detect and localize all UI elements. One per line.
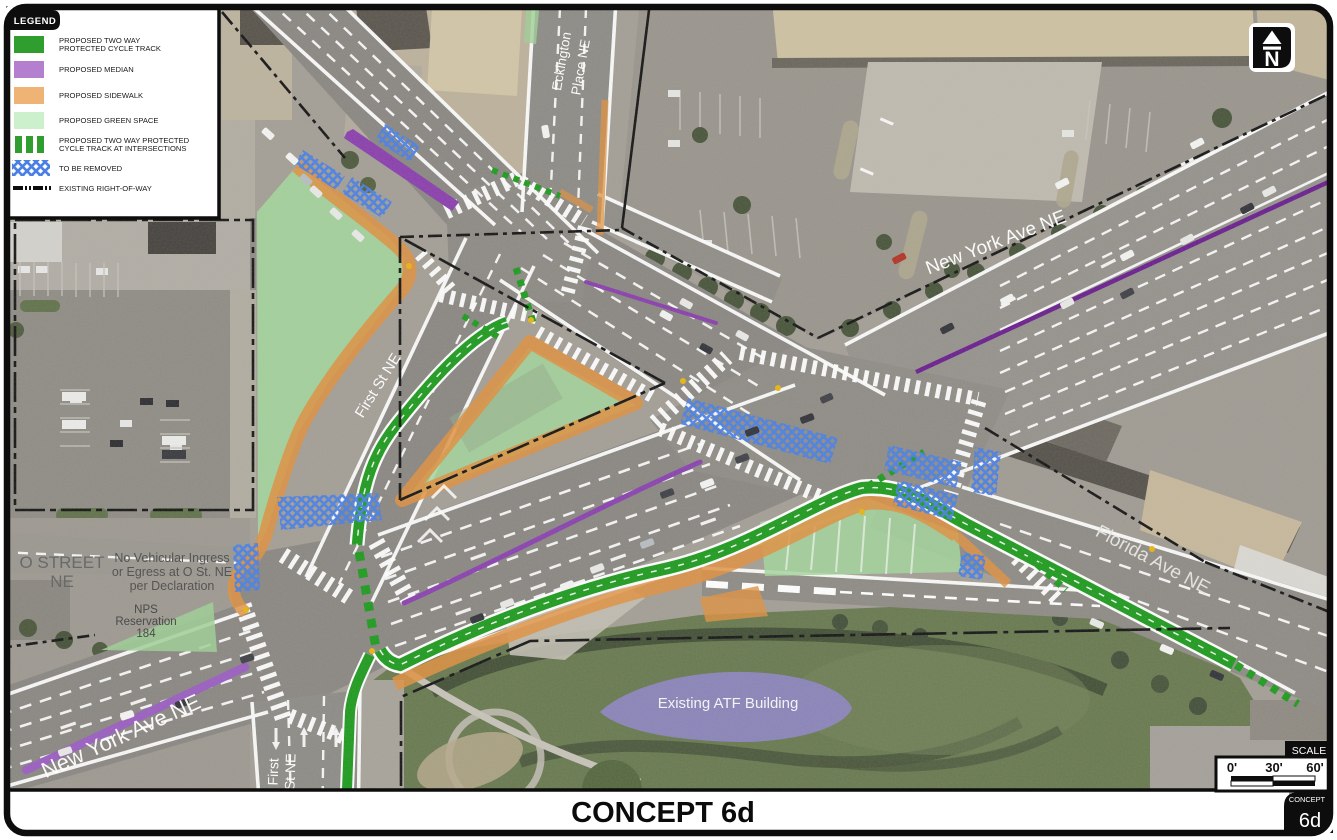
svg-text:0': 0' xyxy=(1227,760,1237,775)
svg-text:O STREET: O STREET xyxy=(19,553,104,572)
svg-text:NE: NE xyxy=(50,572,74,591)
svg-text:St NE: St NE xyxy=(281,753,298,790)
svg-text:per Declaration: per Declaration xyxy=(130,579,215,593)
svg-text:CONCEPT 6d: CONCEPT 6d xyxy=(571,797,755,829)
svg-text:N: N xyxy=(1264,48,1279,71)
svg-text:60': 60' xyxy=(1306,760,1324,775)
svg-text:EXISTING RIGHT-OF-WAY: EXISTING RIGHT-OF-WAY xyxy=(59,184,152,193)
svg-text:Existing ATF Building: Existing ATF Building xyxy=(658,695,799,712)
svg-text:CYCLE TRACK AT INTERSECTIONS: CYCLE TRACK AT INTERSECTIONS xyxy=(59,144,186,153)
svg-text:184: 184 xyxy=(136,628,156,640)
svg-text:PROPOSED SIDEWALK: PROPOSED SIDEWALK xyxy=(59,91,143,100)
svg-text:30': 30' xyxy=(1265,760,1283,775)
svg-text:PROPOSED GREEN SPACE: PROPOSED GREEN SPACE xyxy=(59,116,158,125)
svg-text:First: First xyxy=(265,758,282,786)
svg-text:LEGEND: LEGEND xyxy=(14,16,57,27)
svg-text:TO BE REMOVED: TO BE REMOVED xyxy=(59,164,123,173)
svg-text:Reservation: Reservation xyxy=(115,616,176,628)
svg-text:SCALE: SCALE xyxy=(1292,745,1326,757)
svg-text:PROPOSED MEDIAN: PROPOSED MEDIAN xyxy=(59,65,134,74)
svg-text:PROTECTED CYCLE TRACK: PROTECTED CYCLE TRACK xyxy=(59,44,161,53)
svg-text:CONCEPT: CONCEPT xyxy=(1289,795,1326,804)
svg-text:NPS: NPS xyxy=(134,604,158,616)
svg-text:or Egress at O St. NE: or Egress at O St. NE xyxy=(112,565,232,579)
svg-text:No Vehicular Ingress: No Vehicular Ingress xyxy=(114,551,229,565)
